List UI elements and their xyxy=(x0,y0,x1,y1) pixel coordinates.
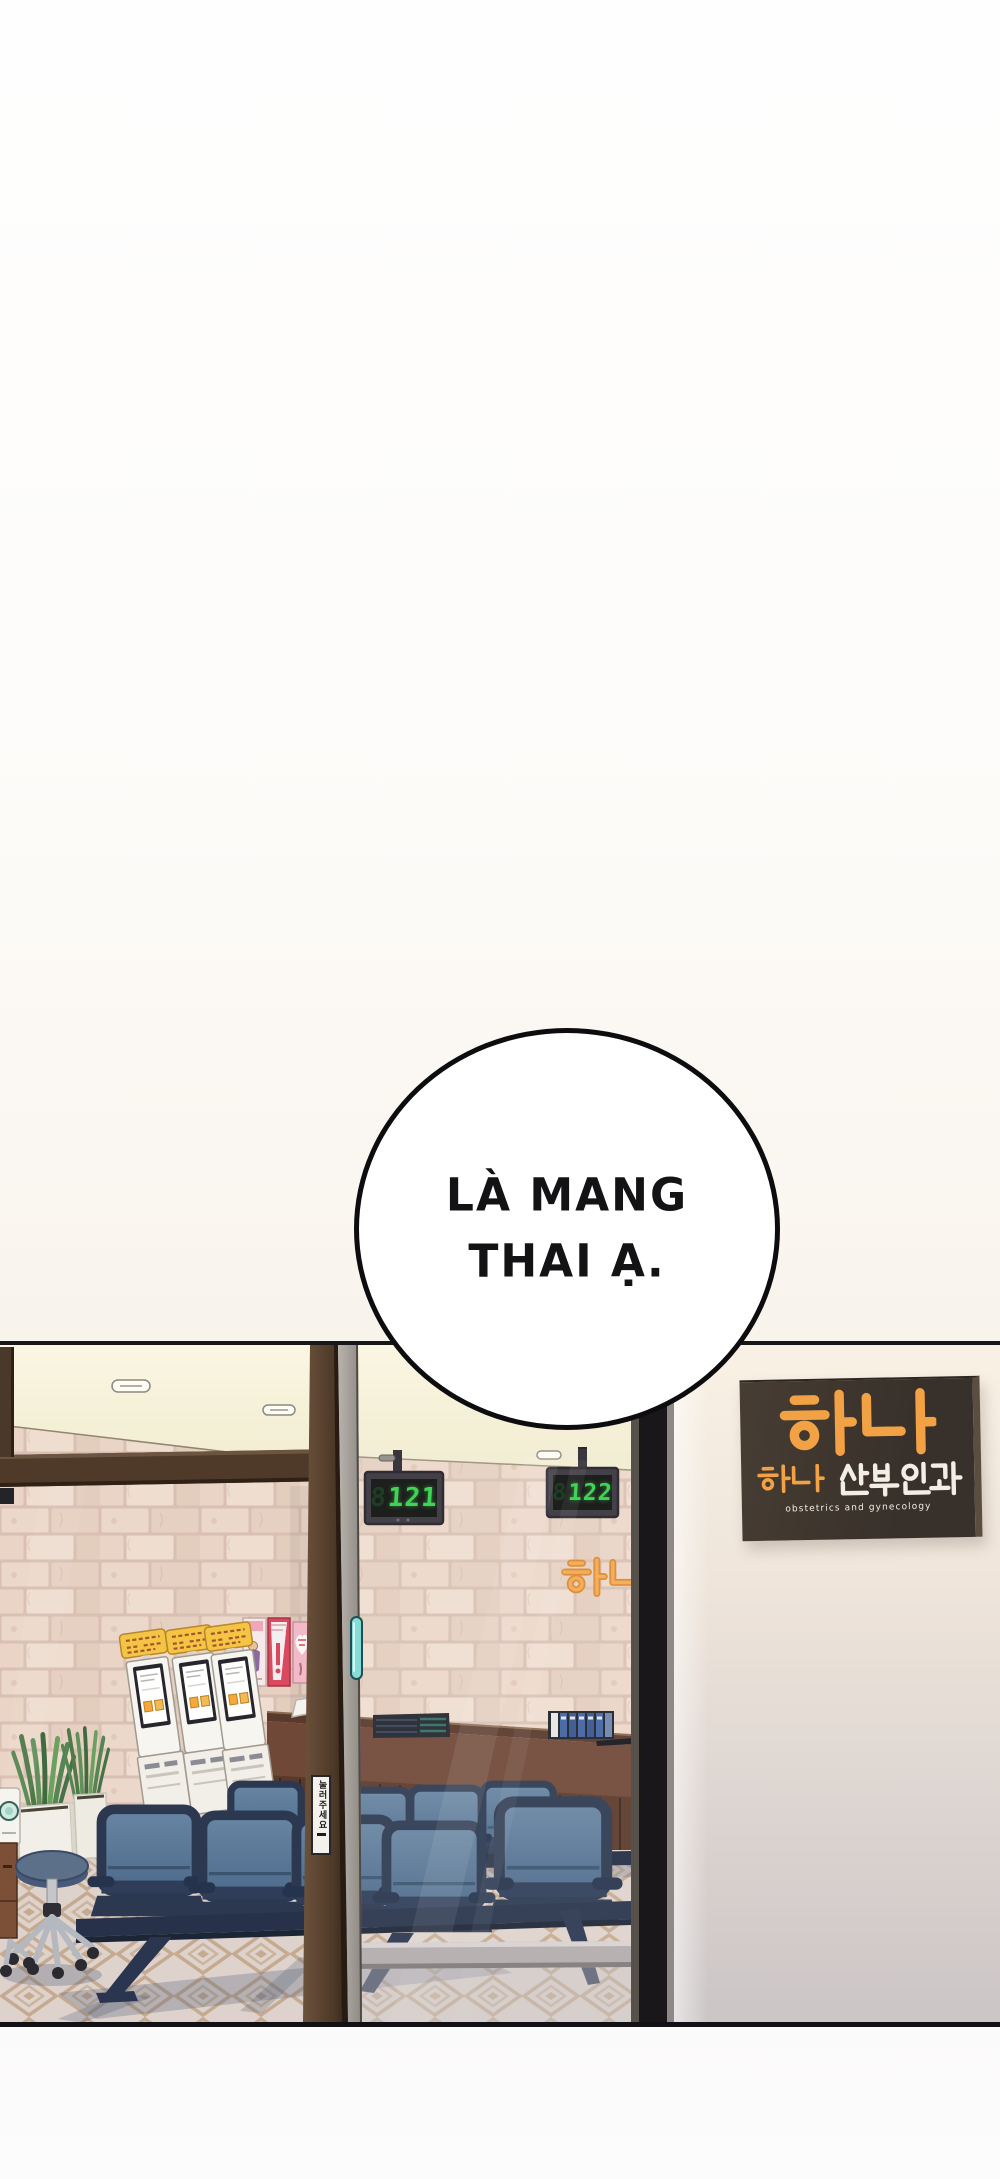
door-press-sign-text: 눌러주세요 xyxy=(317,1780,326,1830)
clinic-brand-text: 하나 xyxy=(777,1382,778,1383)
door-press-sign-bar xyxy=(317,1833,326,1836)
speech-line-1: LÀ MANG xyxy=(446,1162,688,1231)
clinic-name-line xyxy=(752,1461,965,1499)
chair xyxy=(87,1809,210,1916)
door-handle xyxy=(351,1617,362,1679)
door-frame-edge xyxy=(631,1345,674,2022)
edge-display-partial xyxy=(0,1488,14,1504)
wood-cabinet xyxy=(0,1843,17,1938)
led-ghost-digit: 8 xyxy=(551,1480,568,1506)
clinic-name-text: 산부인과 xyxy=(777,1382,778,1383)
clinic-brand-logo xyxy=(777,1388,936,1459)
poster-red xyxy=(268,1618,290,1686)
speech-bubble: LÀ MANG THAI Ạ. xyxy=(354,1028,780,1430)
clinic-sign-board: 하나 산부인과 obstetrics and gynecology xyxy=(739,1376,982,1542)
speech-line-2: THAI Ạ. xyxy=(468,1228,665,1297)
clinic-sign-subtitle: obstetrics and gynecology xyxy=(742,1501,975,1515)
queue-number-display-2: 8122 xyxy=(552,1475,613,1510)
blank-footer-area xyxy=(0,2031,1000,2179)
led-value: 122 xyxy=(567,1480,613,1506)
clinic-panel: 8121 8122 눌러주세요 하나 산부인과 xyxy=(0,1341,1000,2027)
door-kick-rail xyxy=(346,1941,631,2022)
led-ghost-digit: 8 xyxy=(369,1483,388,1513)
comic-page: 8121 8122 눌러주세요 하나 산부인과 xyxy=(0,0,1000,2179)
led-value: 121 xyxy=(387,1483,439,1513)
door-press-sign: 눌러주세요 xyxy=(311,1775,331,1855)
queue-number-display-1: 8121 xyxy=(370,1479,439,1517)
